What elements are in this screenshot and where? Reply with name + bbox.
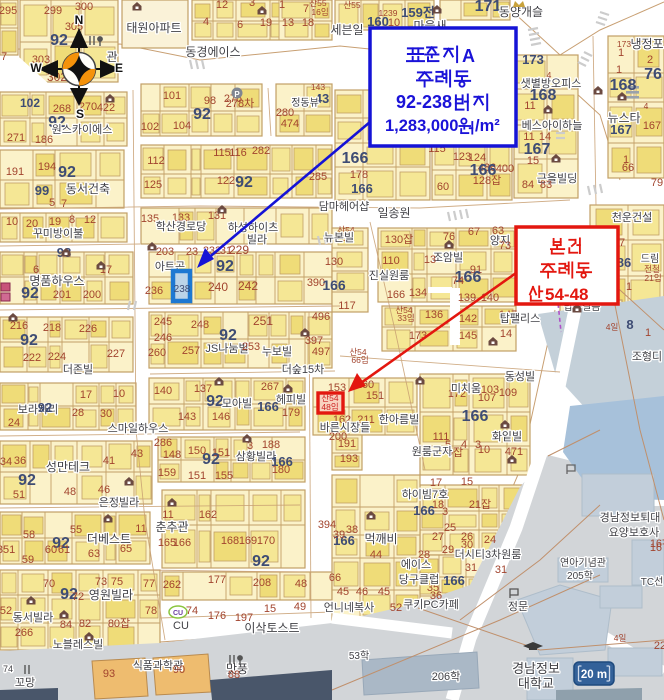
svg-text:262: 262: [163, 579, 181, 591]
svg-text:6: 6: [237, 19, 243, 31]
svg-text:5: 5: [49, 197, 55, 209]
svg-text:7: 7: [619, 237, 625, 249]
svg-text:167: 167: [650, 542, 664, 554]
svg-text:원룸군자: 원룸군자: [412, 445, 452, 458]
svg-text:169: 169: [239, 535, 257, 547]
svg-text:16임: 16임: [311, 7, 328, 17]
svg-text:동경에이스: 동경에이스: [185, 45, 240, 59]
svg-text:136: 136: [425, 309, 443, 321]
svg-text:166: 166: [342, 150, 369, 167]
svg-text:14: 14: [500, 328, 512, 340]
svg-text:경남정보퇴대: 경남정보퇴대: [600, 511, 661, 524]
svg-text:79: 79: [651, 177, 663, 189]
svg-text:166: 166: [462, 408, 489, 425]
svg-text:117: 117: [338, 300, 356, 312]
svg-text:18: 18: [302, 17, 314, 29]
svg-text:194: 194: [38, 161, 56, 173]
svg-text:52: 52: [0, 605, 12, 617]
svg-text:176: 176: [208, 610, 226, 622]
svg-text:112: 112: [147, 155, 165, 167]
svg-text:61: 61: [58, 544, 70, 556]
svg-text:13: 13: [282, 17, 294, 29]
svg-text:236: 236: [145, 285, 163, 297]
svg-text:21임: 21임: [644, 273, 661, 283]
svg-text:산55: 산55: [343, 0, 361, 10]
svg-text:216: 216: [10, 320, 28, 332]
svg-text:65: 65: [120, 543, 132, 555]
svg-text:109: 109: [499, 387, 517, 399]
svg-text:에이스: 에이스: [401, 558, 431, 571]
svg-text:171: 171: [475, 0, 502, 15]
svg-text:38: 38: [346, 524, 358, 536]
svg-text:422: 422: [97, 102, 115, 114]
svg-text:110: 110: [382, 255, 400, 267]
svg-text:44: 44: [370, 549, 382, 561]
svg-text:191: 191: [6, 166, 24, 178]
svg-text:471: 471: [505, 446, 523, 458]
svg-text:166: 166: [413, 503, 435, 518]
svg-text:TC선: TC선: [641, 576, 664, 588]
svg-text:140: 140: [154, 385, 172, 397]
svg-text:143: 143: [178, 411, 196, 423]
svg-text:92: 92: [235, 174, 253, 191]
svg-text:173: 173: [409, 330, 427, 342]
svg-text:1: 1: [279, 0, 285, 11]
svg-text:496: 496: [312, 311, 330, 323]
svg-text:177: 177: [208, 574, 226, 586]
svg-text:122: 122: [217, 175, 235, 187]
svg-text:12: 12: [84, 214, 96, 226]
svg-text:497: 497: [312, 346, 330, 358]
svg-text:201: 201: [53, 289, 71, 301]
svg-text:화잍빌: 화잍빌: [492, 429, 522, 443]
svg-text:더숲15차: 더숲15차: [282, 363, 325, 376]
svg-text:뉴본빌: 뉴본빌: [324, 231, 354, 244]
svg-text:282: 282: [252, 145, 270, 157]
svg-text:83: 83: [540, 179, 552, 191]
svg-text:43: 43: [131, 448, 143, 460]
svg-text:78: 78: [145, 605, 157, 617]
svg-text:142: 142: [459, 313, 477, 325]
svg-text:CU: CU: [173, 620, 189, 632]
svg-text:224: 224: [48, 351, 66, 363]
svg-text:248: 248: [191, 319, 209, 331]
svg-text:꾸미방이불: 꾸미방이불: [33, 227, 84, 240]
svg-text:257: 257: [182, 345, 200, 357]
svg-text:278차: 278차: [226, 97, 254, 110]
svg-text:11: 11: [524, 100, 535, 112]
svg-text:53학: 53학: [349, 650, 369, 662]
svg-text:242: 242: [238, 279, 258, 293]
svg-text:A: A: [462, 46, 475, 66]
svg-text:17: 17: [430, 477, 442, 489]
svg-text:경남정보: 경남정보: [512, 661, 560, 676]
svg-text:90: 90: [173, 664, 185, 676]
svg-text:222: 222: [23, 352, 41, 364]
svg-text:63: 63: [88, 548, 100, 560]
svg-text:80잡: 80잡: [108, 617, 130, 630]
svg-text:92: 92: [50, 32, 68, 49]
svg-text:92: 92: [216, 258, 234, 275]
svg-text:요양보호사: 요양보호사: [609, 526, 660, 539]
svg-text:11: 11: [135, 523, 146, 535]
svg-text:73: 73: [95, 576, 107, 588]
svg-text:언니네복사: 언니네복사: [324, 601, 375, 614]
svg-text:92: 92: [252, 553, 270, 570]
svg-text:태원아파트: 태원아파트: [126, 21, 181, 35]
svg-text:102: 102: [20, 96, 40, 110]
svg-text:46: 46: [356, 586, 368, 598]
svg-text:조형디: 조형디: [632, 350, 662, 363]
svg-text:29: 29: [442, 544, 454, 556]
svg-text:76: 76: [644, 66, 662, 83]
svg-text:92: 92: [20, 332, 38, 349]
svg-text:20 m: 20 m: [581, 669, 607, 681]
svg-text:은정빌라: 은정빌라: [99, 496, 139, 509]
svg-text:33임: 33임: [397, 313, 414, 323]
svg-text:24: 24: [484, 534, 496, 546]
svg-text:82: 82: [79, 618, 91, 630]
svg-text:66: 66: [622, 162, 634, 174]
svg-text:60: 60: [437, 181, 449, 193]
svg-text:4: 4: [644, 101, 649, 111]
svg-text:155: 155: [215, 470, 233, 482]
svg-text:31: 31: [465, 562, 477, 574]
svg-text:166: 166: [322, 277, 346, 293]
svg-text:179: 179: [282, 407, 300, 419]
svg-text:188: 188: [262, 439, 280, 451]
svg-text:167: 167: [610, 122, 632, 137]
svg-text:227: 227: [107, 348, 125, 360]
svg-text:166: 166: [443, 573, 465, 588]
svg-text:191: 191: [338, 438, 356, 450]
svg-text:115: 115: [213, 147, 231, 159]
svg-text:397: 397: [305, 335, 323, 347]
svg-text:116: 116: [229, 147, 247, 159]
svg-text:52: 52: [390, 602, 402, 614]
svg-text:꼬망: 꼬망: [15, 676, 35, 689]
svg-text:178: 178: [350, 169, 368, 181]
svg-text:180: 180: [272, 464, 290, 476]
svg-text:동성빌: 동성빌: [505, 370, 535, 383]
svg-text:67: 67: [468, 226, 480, 238]
svg-text:34: 34: [0, 456, 12, 468]
svg-text:151: 151: [188, 470, 206, 482]
svg-text:28: 28: [72, 407, 84, 419]
svg-text:92: 92: [193, 106, 211, 123]
svg-text:92: 92: [21, 285, 39, 302]
svg-text:학산경로당: 학산경로당: [156, 220, 207, 233]
svg-text:정동뷰: 정동뷰: [291, 97, 319, 109]
svg-text:102: 102: [141, 121, 159, 133]
svg-text:101: 101: [163, 90, 181, 102]
svg-text:1,283,000: 1,283,000: [385, 117, 458, 135]
svg-text:266: 266: [15, 627, 33, 639]
svg-text:55: 55: [70, 524, 82, 536]
svg-text:166: 166: [257, 399, 279, 414]
svg-text:8: 8: [626, 317, 633, 332]
svg-text:41: 41: [103, 455, 115, 467]
svg-text:299: 299: [44, 5, 62, 17]
svg-text:정문: 정문: [508, 600, 528, 613]
svg-text:300: 300: [75, 1, 93, 13]
svg-text:15: 15: [461, 476, 473, 488]
svg-text:일송원: 일송원: [377, 206, 410, 220]
svg-text:영원빌라: 영원빌라: [89, 588, 133, 602]
svg-text:218: 218: [43, 322, 61, 334]
svg-text:70: 70: [43, 578, 55, 590]
svg-text:22: 22: [654, 640, 664, 652]
svg-text:107: 107: [478, 392, 496, 404]
svg-text:208: 208: [253, 577, 271, 589]
svg-text:베스아이하늘: 베스아이하늘: [522, 118, 583, 132]
svg-text:271: 271: [7, 132, 25, 144]
svg-text:166: 166: [173, 537, 191, 549]
svg-text:미치움: 미치움: [451, 382, 481, 395]
svg-text:92-238: 92-238: [396, 92, 452, 112]
svg-text:145: 145: [459, 330, 477, 342]
svg-text:474: 474: [281, 118, 299, 130]
svg-text:31: 31: [495, 564, 507, 576]
svg-text:더존빌: 더존빌: [63, 363, 93, 376]
svg-text:72: 72: [72, 591, 84, 603]
svg-text:10: 10: [113, 388, 125, 400]
svg-text:286: 286: [154, 437, 172, 449]
svg-text:춘추관: 춘추관: [155, 520, 188, 534]
svg-text:49: 49: [294, 601, 306, 613]
svg-text:CU: CU: [173, 610, 183, 617]
svg-text:S: S: [76, 107, 84, 121]
svg-text:누보빌: 누보빌: [262, 345, 292, 358]
svg-text:170: 170: [257, 535, 275, 547]
svg-text:125: 125: [144, 179, 162, 191]
svg-text:30: 30: [100, 408, 112, 420]
svg-text:노블레스빌: 노블레스빌: [53, 638, 104, 651]
svg-text:성만테크: 성만테크: [46, 460, 90, 474]
svg-text:4일: 4일: [614, 633, 627, 643]
svg-text:동서빌라: 동서빌라: [13, 611, 53, 624]
svg-text:대학교: 대학교: [518, 676, 554, 691]
svg-text:45: 45: [378, 586, 390, 598]
svg-text:146: 146: [212, 411, 230, 423]
svg-text:빌라: 빌라: [247, 233, 267, 246]
svg-text:253: 253: [242, 341, 260, 353]
svg-text:동양개슬: 동양개슬: [499, 5, 543, 19]
svg-text:동서건축: 동서건축: [66, 182, 110, 196]
svg-text:1: 1: [626, 281, 632, 293]
svg-text:93: 93: [103, 668, 115, 680]
svg-text:51: 51: [13, 489, 25, 501]
svg-text:54-48: 54-48: [545, 285, 588, 304]
svg-text:140: 140: [481, 292, 499, 304]
svg-text:24: 24: [8, 417, 20, 429]
svg-text:92: 92: [219, 327, 237, 344]
svg-text:74: 74: [3, 664, 13, 674]
svg-text:2: 2: [647, 54, 653, 66]
svg-text:21잡: 21잡: [469, 498, 491, 511]
svg-text:193: 193: [340, 453, 358, 465]
svg-text:8: 8: [69, 214, 75, 226]
svg-text:48: 48: [64, 486, 76, 498]
svg-text:245: 245: [154, 316, 172, 328]
svg-text:36: 36: [14, 455, 26, 467]
svg-text:17: 17: [80, 389, 92, 401]
svg-text:N: N: [75, 13, 84, 27]
svg-text:1: 1: [645, 327, 651, 339]
svg-text:연아기념관: 연아기념관: [560, 557, 606, 569]
svg-text:4일: 4일: [606, 322, 619, 332]
svg-text:84: 84: [60, 619, 72, 631]
svg-text:/m²: /m²: [475, 117, 500, 135]
svg-text:1: 1: [616, 64, 622, 76]
svg-text:92: 92: [58, 164, 76, 181]
svg-text:모아빌: 모아빌: [222, 397, 252, 410]
svg-text:251: 251: [253, 314, 273, 328]
svg-text:151: 151: [366, 390, 384, 402]
svg-text:88: 88: [228, 669, 240, 681]
svg-text:쿠키PC카페: 쿠키PC카페: [403, 598, 459, 611]
svg-text:10: 10: [478, 444, 490, 456]
svg-text:이삭토스트: 이삭토스트: [244, 621, 299, 635]
svg-text:27: 27: [432, 531, 444, 543]
svg-text:7: 7: [303, 3, 309, 15]
svg-text:246: 246: [154, 332, 172, 344]
svg-text:60: 60: [45, 544, 57, 556]
svg-text:206학: 206학: [432, 670, 460, 683]
svg-text:담마헤어샵: 담마헤어샵: [319, 200, 370, 213]
svg-text:351: 351: [0, 544, 15, 556]
svg-text:W: W: [30, 61, 42, 75]
svg-text:143: 143: [311, 82, 325, 92]
svg-text:92: 92: [18, 472, 36, 489]
svg-text:헤피빌: 헤피빌: [276, 393, 306, 406]
svg-text:11: 11: [162, 509, 173, 521]
svg-text:130: 130: [325, 256, 343, 268]
svg-text:냉정포: 냉정포: [630, 37, 663, 51]
svg-text:먹깨비: 먹깨비: [364, 532, 397, 546]
svg-text:260: 260: [148, 347, 166, 359]
svg-text:295: 295: [0, 5, 17, 17]
svg-text:더시티3차원룸: 더시티3차원룸: [455, 548, 522, 561]
svg-text:205학: 205학: [567, 570, 593, 582]
svg-text:13: 13: [424, 254, 436, 266]
svg-text:59: 59: [22, 554, 34, 566]
svg-text:조암빌: 조암빌: [433, 251, 463, 264]
svg-text:77: 77: [143, 578, 155, 590]
svg-text:탑팰리스: 탑팰리스: [500, 312, 540, 325]
svg-text:진실원룸: 진실원룸: [369, 269, 409, 282]
svg-text:203: 203: [156, 246, 174, 258]
svg-text:58: 58: [23, 529, 35, 541]
svg-text:99: 99: [35, 183, 49, 198]
svg-text:394: 394: [318, 519, 336, 531]
svg-text:4: 4: [203, 16, 209, 28]
svg-text:15: 15: [527, 155, 539, 167]
svg-text:스마일하우스: 스마일하우스: [108, 421, 169, 435]
svg-text:한아름빌: 한아름빌: [379, 413, 419, 426]
svg-text:186: 186: [35, 134, 53, 146]
svg-text:168: 168: [221, 535, 239, 547]
svg-text:134: 134: [409, 287, 427, 299]
svg-text:당구클럽: 당구클럽: [399, 572, 439, 586]
svg-text:P: P: [234, 90, 240, 99]
svg-text:12: 12: [216, 0, 228, 11]
svg-text:238: 238: [174, 284, 191, 295]
svg-text:167: 167: [643, 120, 661, 132]
svg-text:148: 148: [163, 449, 181, 461]
svg-text:104: 104: [173, 120, 191, 132]
svg-text:75: 75: [111, 576, 123, 588]
svg-text:48: 48: [295, 578, 307, 590]
svg-text:173: 173: [522, 52, 544, 67]
svg-text:229: 229: [229, 243, 249, 257]
svg-text:73: 73: [499, 240, 511, 252]
svg-text:166: 166: [351, 181, 373, 196]
svg-text:240: 240: [208, 280, 228, 294]
svg-text:200: 200: [83, 289, 101, 301]
svg-text:46: 46: [98, 484, 110, 496]
svg-text:1: 1: [618, 47, 624, 59]
svg-text:천운건설: 천운건설: [612, 210, 652, 224]
svg-text:7: 7: [1, 51, 7, 63]
svg-text:3: 3: [249, 0, 255, 9]
svg-text:162: 162: [199, 509, 217, 521]
svg-text:74: 74: [452, 275, 464, 287]
svg-text:159전: 159전: [401, 5, 435, 20]
svg-text:159: 159: [158, 467, 176, 479]
svg-text:84: 84: [522, 179, 534, 191]
svg-text:4: 4: [547, 70, 552, 80]
svg-text:19: 19: [49, 216, 61, 228]
svg-text:15: 15: [264, 603, 276, 615]
svg-text:92: 92: [38, 400, 52, 415]
svg-text:166: 166: [387, 289, 405, 301]
svg-text:226: 226: [79, 323, 97, 335]
svg-text:48임: 48임: [321, 402, 338, 412]
svg-text:세븐일: 세븐일: [330, 23, 363, 37]
svg-text:92: 92: [202, 451, 220, 468]
svg-text:66: 66: [329, 572, 341, 584]
svg-text:25: 25: [444, 522, 456, 534]
svg-text:267: 267: [261, 381, 279, 393]
svg-text:7: 7: [61, 198, 67, 210]
svg-text:19: 19: [260, 17, 272, 29]
svg-text:168: 168: [610, 77, 637, 94]
svg-text:10: 10: [6, 216, 18, 228]
svg-text:66임: 66임: [351, 355, 368, 365]
svg-text:3: 3: [442, 506, 448, 518]
svg-text:원스카이에스: 원스카이에스: [52, 123, 113, 136]
svg-text:128잡: 128잡: [473, 174, 501, 187]
svg-text:400: 400: [496, 163, 514, 175]
svg-text:130잡: 130잡: [385, 233, 413, 246]
svg-text:23: 23: [186, 246, 198, 258]
svg-text:45: 45: [337, 586, 349, 598]
svg-text:E: E: [115, 61, 123, 75]
